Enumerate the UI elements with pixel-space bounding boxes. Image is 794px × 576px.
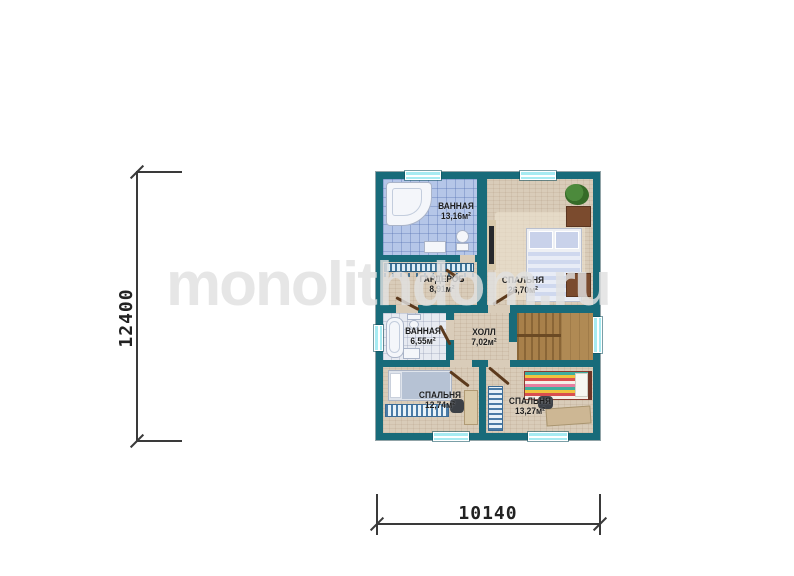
room-area: 13,16м² (421, 212, 491, 222)
room-area: 6,55м² (389, 337, 458, 347)
horizontal-dimension-riser-right (599, 494, 601, 535)
sink-icon (403, 348, 420, 359)
window-icon (374, 325, 383, 351)
window-icon (528, 432, 568, 441)
window-icon (405, 171, 441, 180)
pillow (390, 373, 401, 398)
clothes-rack-icon (384, 263, 474, 272)
stair-landing (561, 313, 593, 360)
floor-plan: ВАННАЯ 13,16м² СПАЛЬНЯ 26,70м² ГАРДЕРОБ … (376, 172, 600, 440)
room-area: 13,27м² (495, 407, 565, 417)
headboard (588, 371, 592, 400)
room-label-bedroom-3: СПАЛЬНЯ 13,27м² (495, 397, 565, 418)
room-label-hall: ХОЛЛ 7,02м² (449, 328, 519, 349)
toilet-icon (456, 230, 469, 243)
stair-railing (517, 334, 561, 337)
window-icon (593, 317, 602, 353)
floor-plan-page: 12400 10140 (0, 0, 794, 576)
room-area: 7,02м² (449, 338, 519, 348)
door-opening-bedroom-3 (488, 360, 510, 367)
room-label-bathroom-2: ВАННАЯ 6,55м² (389, 327, 458, 348)
window-icon (433, 432, 469, 441)
pillow (555, 231, 579, 249)
toilet-tank (456, 243, 469, 251)
nightstand-icon (566, 206, 591, 227)
horizontal-dimension-label: 10140 (448, 503, 528, 524)
tv-icon (489, 226, 494, 264)
pillow (575, 373, 588, 397)
door-opening-bedroom-1 (488, 305, 510, 313)
sink-icon (424, 241, 446, 253)
room-label-bedroom-2: СПАЛЬНЯ 12,74м² (405, 391, 475, 412)
room-area: 12,74м² (405, 401, 475, 411)
vertical-dimension-label: 12400 (116, 278, 136, 358)
room-label-bedroom-1: СПАЛЬНЯ 26,70м² (488, 276, 558, 297)
room-label-bathroom-1: ВАННАЯ 13,16м² (421, 202, 491, 223)
room-area: 26,70м² (488, 286, 558, 296)
vertical-dimension-ext-top (136, 171, 182, 173)
nightstand-icon (566, 273, 591, 297)
room-label-wardrobe: ГАРДЕРОБ 8,91м² (407, 275, 477, 296)
pillow (529, 231, 553, 249)
room-area: 8,91м² (407, 285, 477, 295)
door-opening-bedroom-2 (450, 360, 472, 367)
horizontal-dimension-riser-left (376, 494, 378, 535)
plant-icon (565, 184, 589, 205)
door-opening-bathroom-1 (460, 255, 475, 262)
vertical-dimension-ext-bottom (136, 440, 182, 442)
window-icon (520, 171, 556, 180)
